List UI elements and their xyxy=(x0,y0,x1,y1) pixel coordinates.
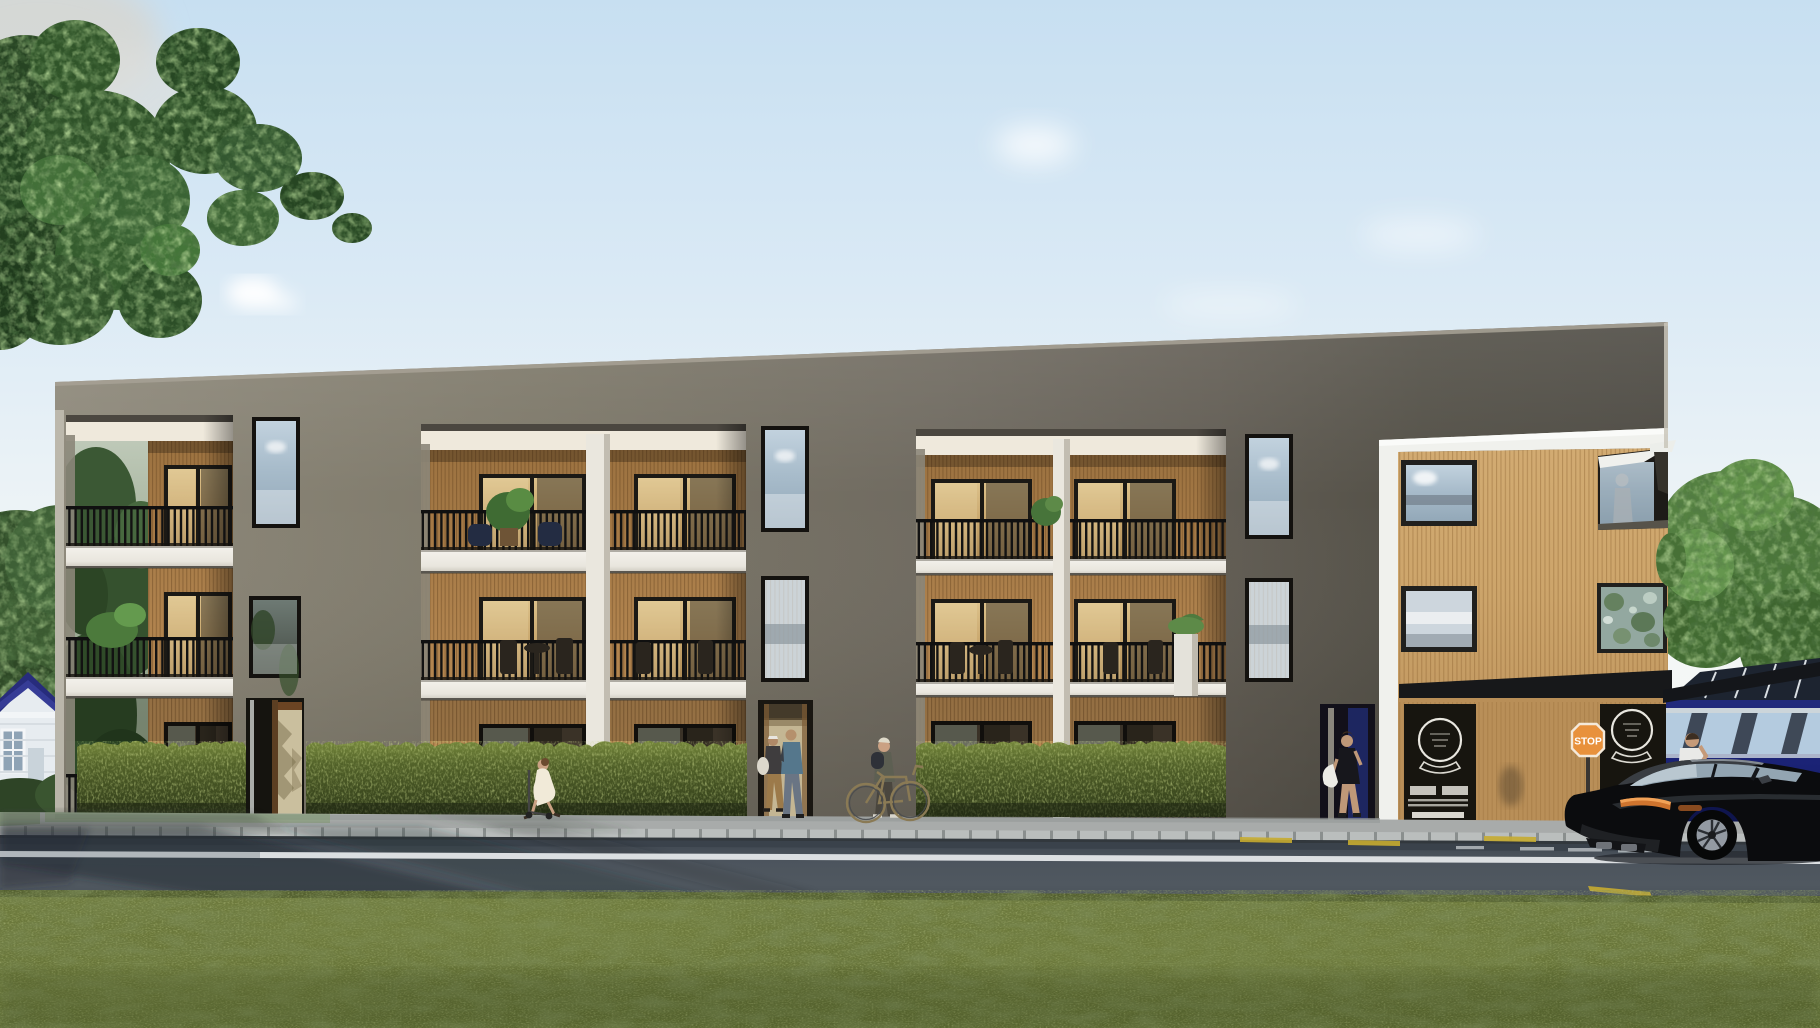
svg-text:STOP: STOP xyxy=(1574,737,1602,748)
